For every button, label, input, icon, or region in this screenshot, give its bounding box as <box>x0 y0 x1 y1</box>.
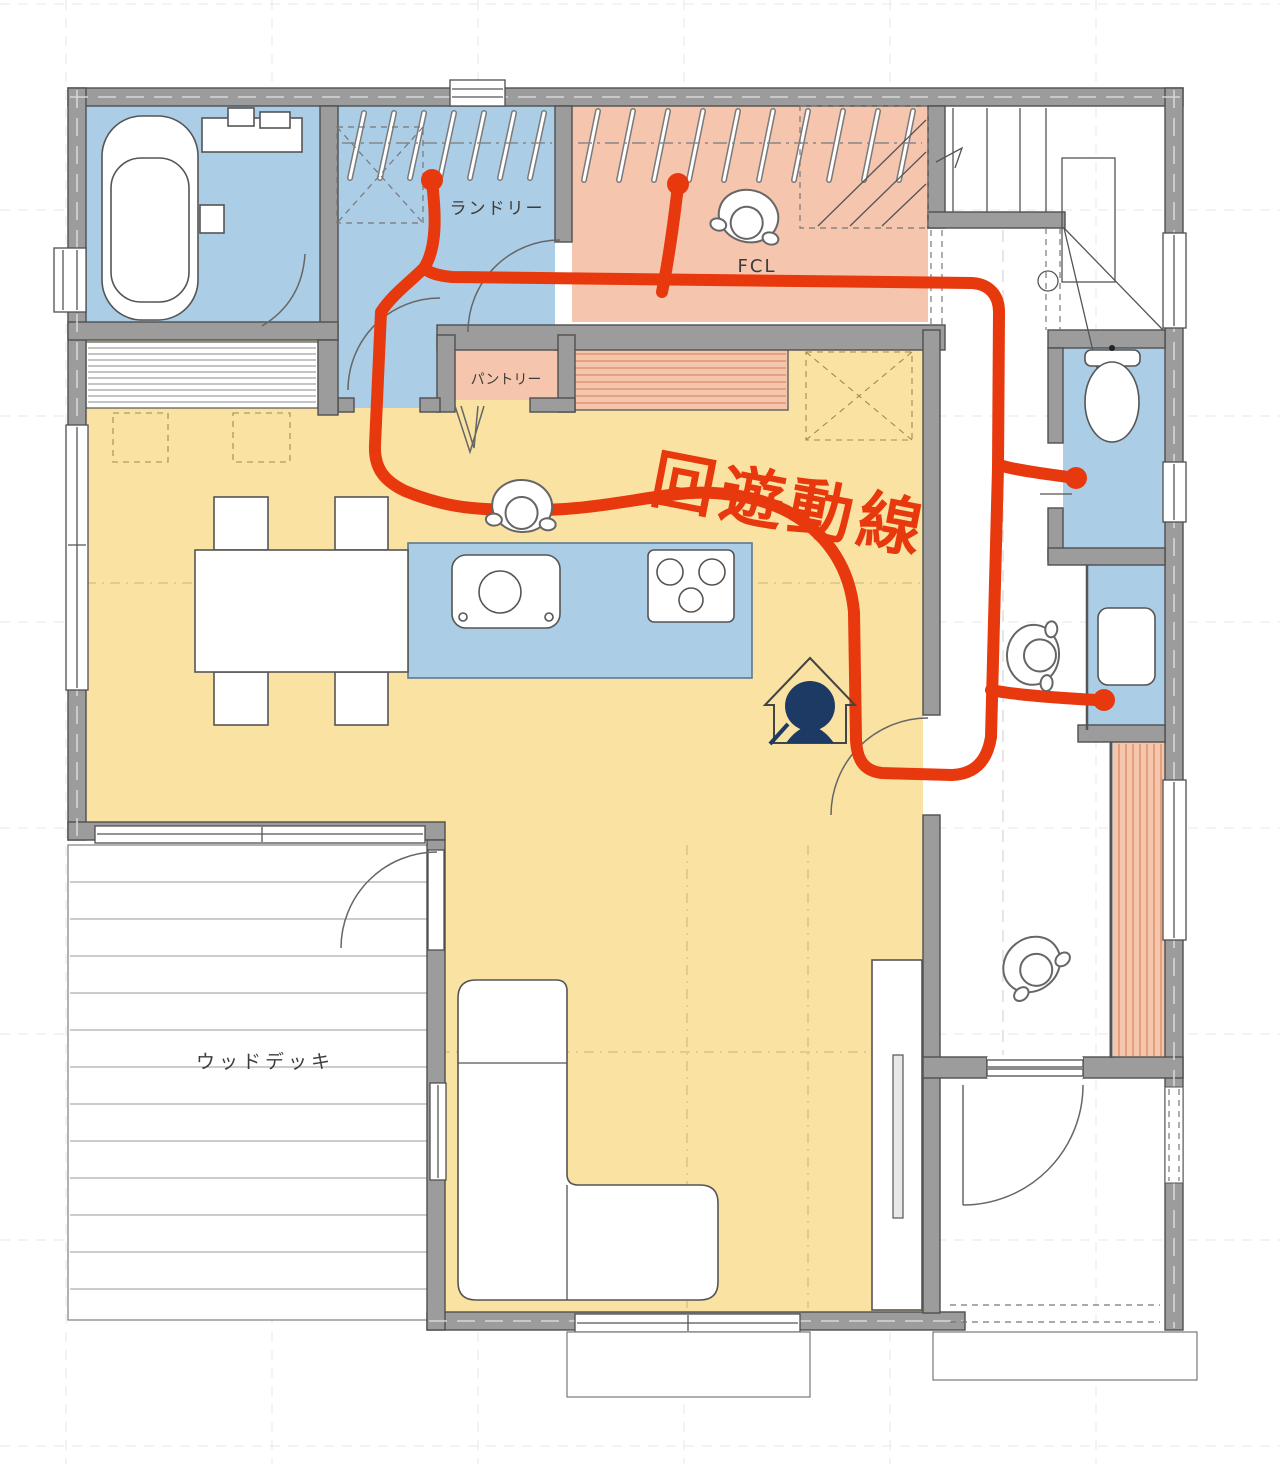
entry-side-opening <box>1165 1087 1183 1183</box>
flow-endpoint-dot <box>421 169 443 191</box>
bath-shelf <box>200 205 224 233</box>
person-top-view-icon <box>988 922 1075 1007</box>
strip-stripes <box>1119 744 1161 1056</box>
storage-strip <box>1113 742 1165 1058</box>
wood-deck <box>68 845 440 1320</box>
window <box>66 425 88 690</box>
kitchen-back-counter <box>573 348 788 410</box>
sliding-window <box>95 826 425 843</box>
fcl-label: FCL <box>738 256 777 277</box>
flow-endpoint-dot <box>667 173 689 195</box>
terrace-step <box>567 1332 810 1397</box>
flow-arrow-dot <box>1093 689 1115 711</box>
flow-branch-washbasin <box>991 690 1096 700</box>
tv-board-icon <box>872 960 922 1310</box>
pantry-label: パントリー <box>471 372 542 388</box>
window <box>430 1083 446 1180</box>
flow-branch-toilet <box>999 465 1068 477</box>
person-top-view-icon <box>1004 618 1062 692</box>
entrance-door <box>963 1085 1083 1205</box>
toilet-icon <box>1085 345 1140 442</box>
window <box>54 248 86 312</box>
window <box>1163 233 1186 328</box>
laundry-label: ランドリー <box>450 199 545 219</box>
window <box>1163 462 1186 522</box>
floor-plan: ランドリー FCL パントリー ウッドデッキ 回遊動線 <box>0 0 1280 1464</box>
window <box>450 80 505 106</box>
louver-storage <box>86 342 318 408</box>
window <box>1163 780 1186 940</box>
sliding-door <box>987 1057 1083 1078</box>
bath-fixture <box>260 112 290 128</box>
sliding-window <box>575 1314 800 1332</box>
washbasin-icon <box>1098 608 1155 685</box>
bathtub-icon <box>102 116 198 320</box>
bath-fixture <box>228 108 254 126</box>
flow-arrow-dot <box>1065 467 1087 489</box>
kitchen-island-icon <box>408 543 752 678</box>
floor-plan-canvas: ランドリー FCL パントリー ウッドデッキ 回遊動線 <box>0 0 1280 1464</box>
kitchen-sink-icon <box>452 555 560 628</box>
stove-icon <box>648 550 734 622</box>
wood-deck-label: ウッドデッキ <box>196 1051 334 1073</box>
entrance-porch <box>933 1332 1197 1380</box>
